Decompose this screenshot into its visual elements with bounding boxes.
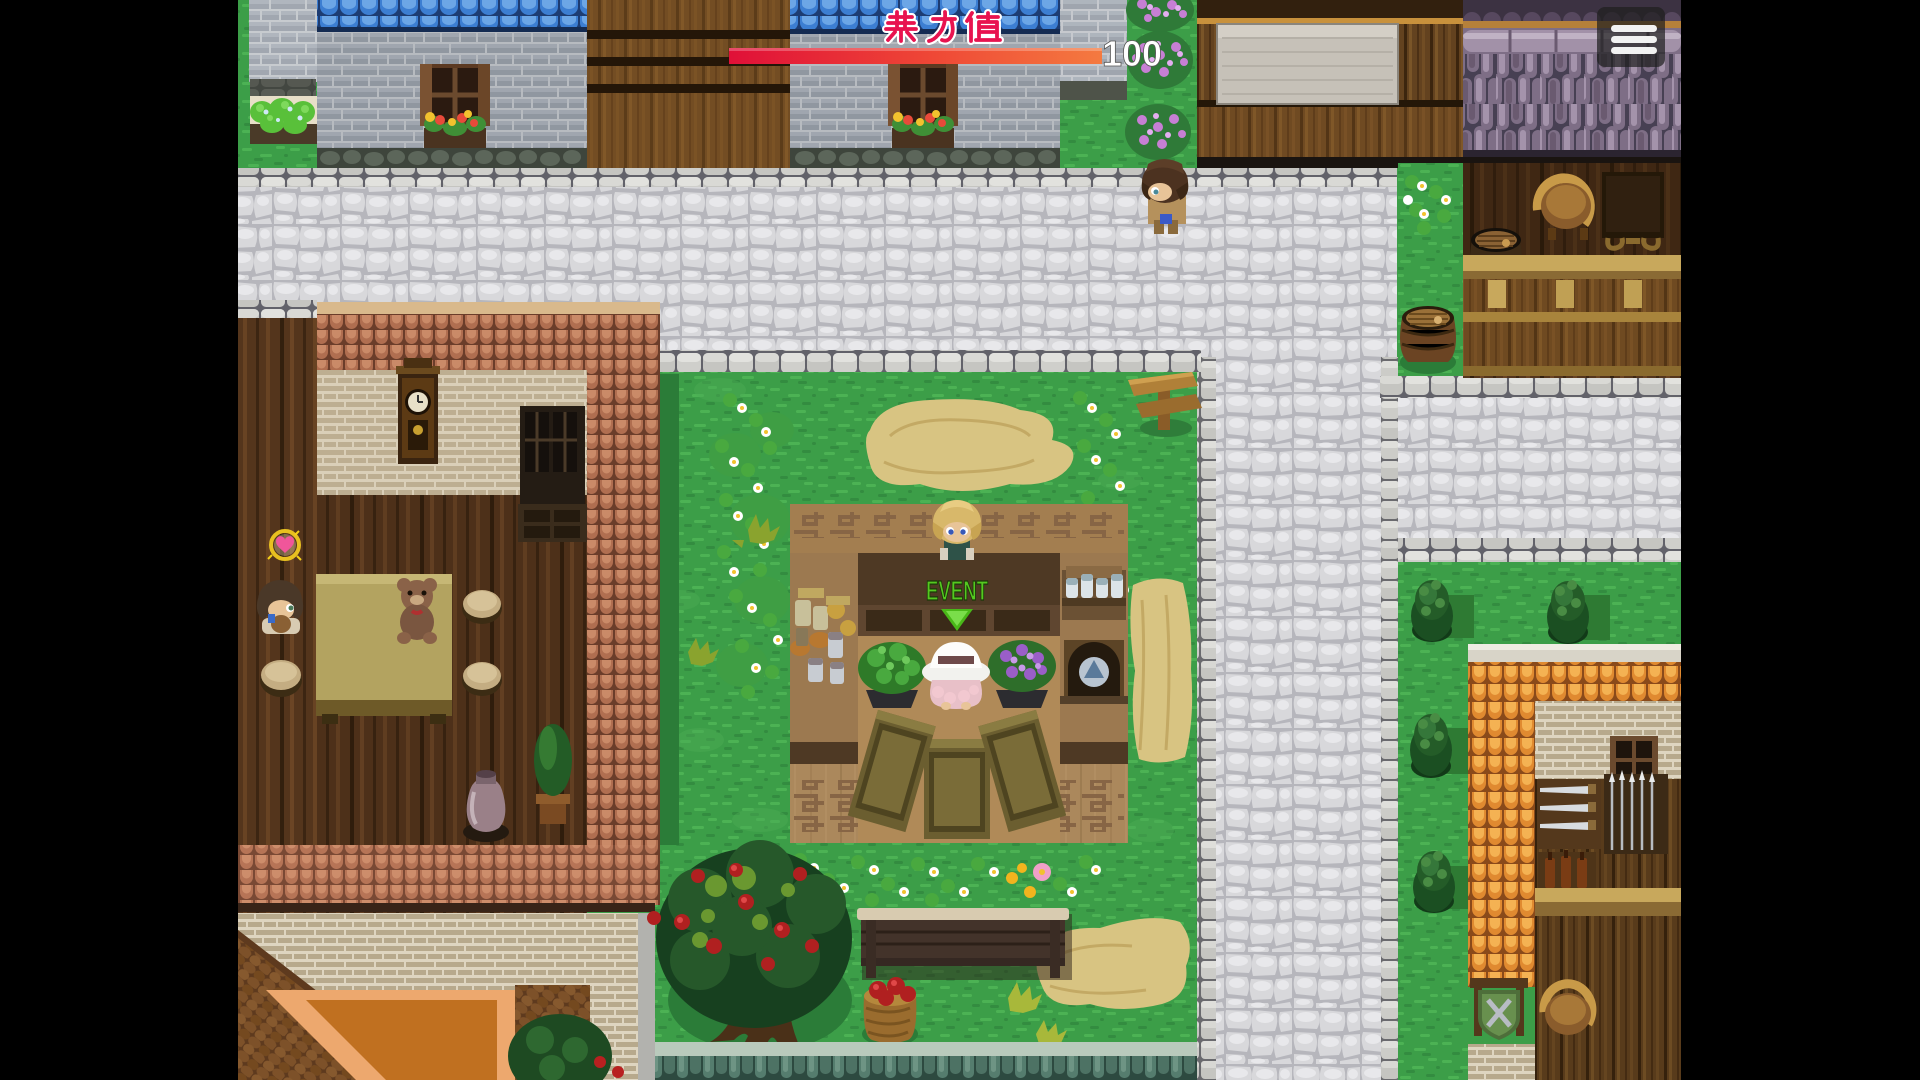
svg-text:100: 100 [1102,33,1162,74]
svg-text:EVENT: EVENT [926,575,988,606]
